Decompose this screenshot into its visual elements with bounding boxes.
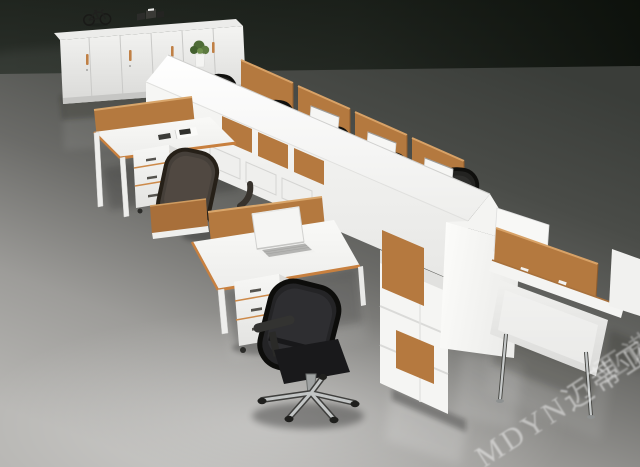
chair-shadow <box>252 403 364 429</box>
partial-desk-right-edge <box>609 249 640 316</box>
office-furniture-render: MDYN迈蒂亚诺 亚诺 <box>0 0 640 467</box>
desk-partition-neighbor <box>150 199 209 239</box>
